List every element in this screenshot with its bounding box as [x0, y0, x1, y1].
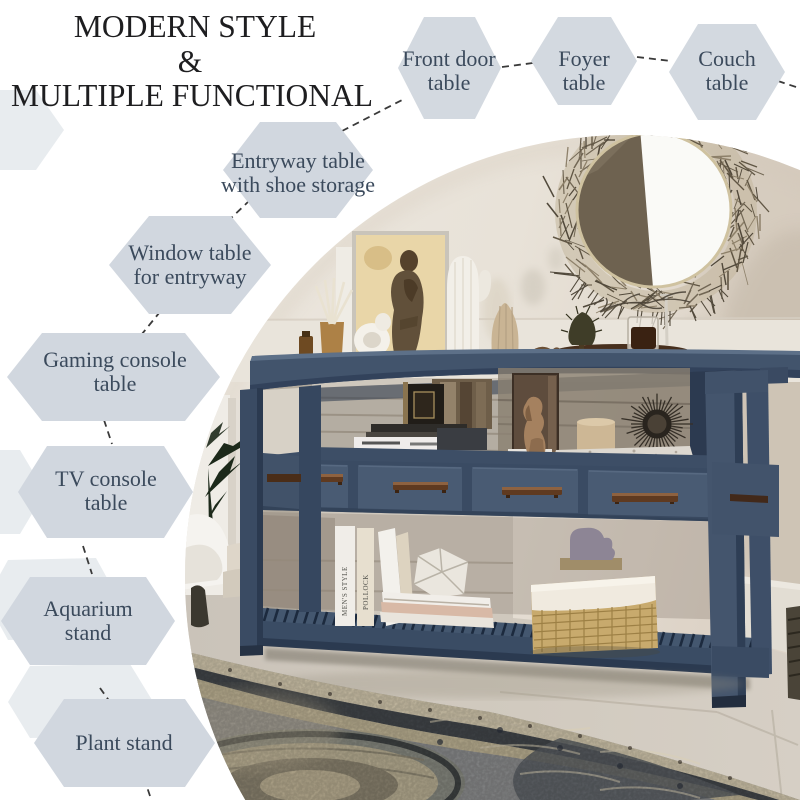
- svg-text:Gaming console: Gaming console: [43, 347, 187, 372]
- svg-text:Foyer: Foyer: [558, 46, 610, 71]
- svg-text:POLLOCK: POLLOCK: [362, 574, 370, 610]
- svg-text:with shoe storage: with shoe storage: [221, 172, 375, 197]
- svg-text:stand: stand: [65, 620, 111, 645]
- svg-text:for entryway: for entryway: [133, 264, 246, 289]
- svg-text:TV console: TV console: [55, 466, 157, 491]
- svg-text:Couch: Couch: [698, 46, 755, 71]
- svg-text:table: table: [563, 70, 606, 95]
- svg-text:Entryway table: Entryway table: [231, 148, 365, 173]
- svg-text:Front door: Front door: [402, 46, 496, 71]
- svg-text:Aquarium: Aquarium: [43, 596, 132, 621]
- svg-text:MEN'S STYLE: MEN'S STYLE: [341, 566, 349, 616]
- svg-text:table: table: [85, 490, 128, 515]
- svg-text:Plant stand: Plant stand: [75, 730, 172, 755]
- svg-text:table: table: [94, 371, 137, 396]
- svg-text:MODERN STYLE: MODERN STYLE: [74, 9, 316, 44]
- svg-text:&: &: [178, 44, 203, 79]
- svg-text:MULTIPLE FUNCTIONAL: MULTIPLE FUNCTIONAL: [11, 78, 373, 113]
- svg-text:table: table: [428, 70, 471, 95]
- svg-text:Window table: Window table: [128, 240, 251, 265]
- svg-text:table: table: [706, 70, 749, 95]
